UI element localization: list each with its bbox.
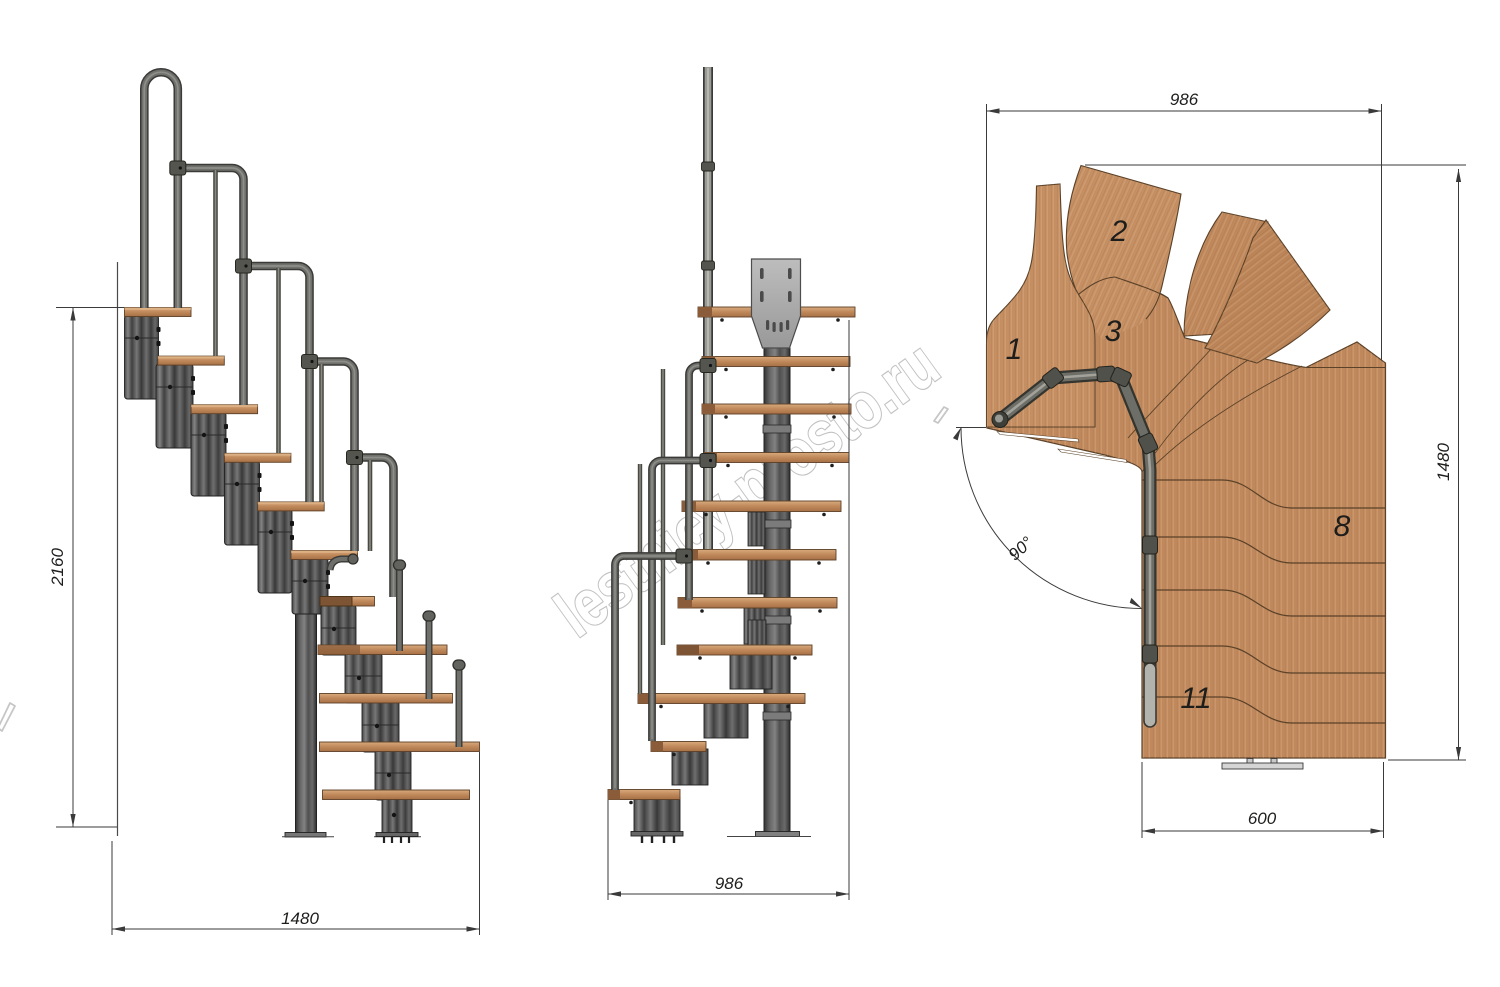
svg-text:11: 11: [1180, 682, 1211, 715]
svg-text:600: 600: [1248, 809, 1277, 828]
svg-text:8: 8: [1334, 510, 1351, 543]
svg-text:1480: 1480: [281, 909, 319, 928]
svg-text:986: 986: [715, 874, 744, 893]
svg-text:2: 2: [1110, 215, 1128, 248]
svg-text:3: 3: [1105, 315, 1122, 348]
svg-text:1480: 1480: [1434, 443, 1453, 481]
svg-text:986: 986: [1170, 90, 1199, 109]
svg-text:2160: 2160: [48, 548, 67, 587]
svg-text:1: 1: [1006, 333, 1023, 366]
